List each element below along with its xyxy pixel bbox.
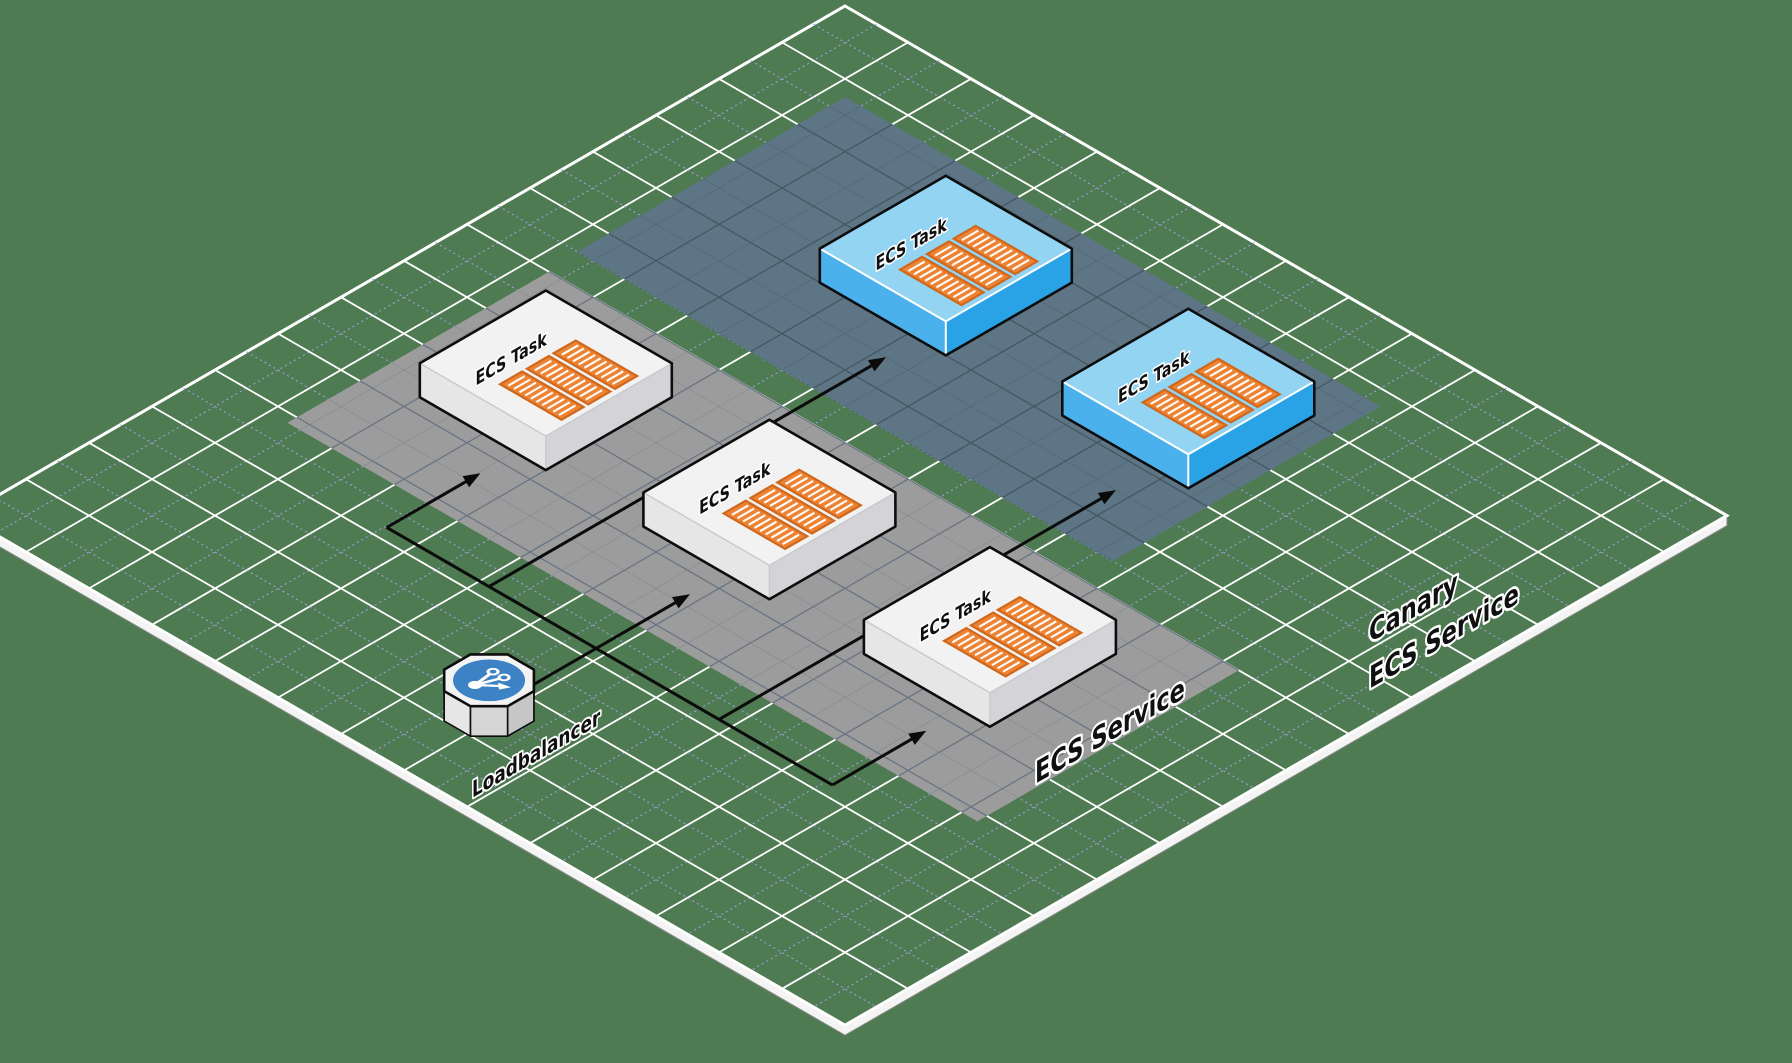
isometric-diagram: ECS ServiceCanaryECS ServiceECS TaskECS … bbox=[0, 0, 1792, 1063]
diagram-canvas: ECS ServiceCanaryECS ServiceECS TaskECS … bbox=[0, 0, 1792, 1063]
load-balancer-icon bbox=[453, 660, 525, 702]
load-balancer[interactable] bbox=[444, 654, 534, 736]
